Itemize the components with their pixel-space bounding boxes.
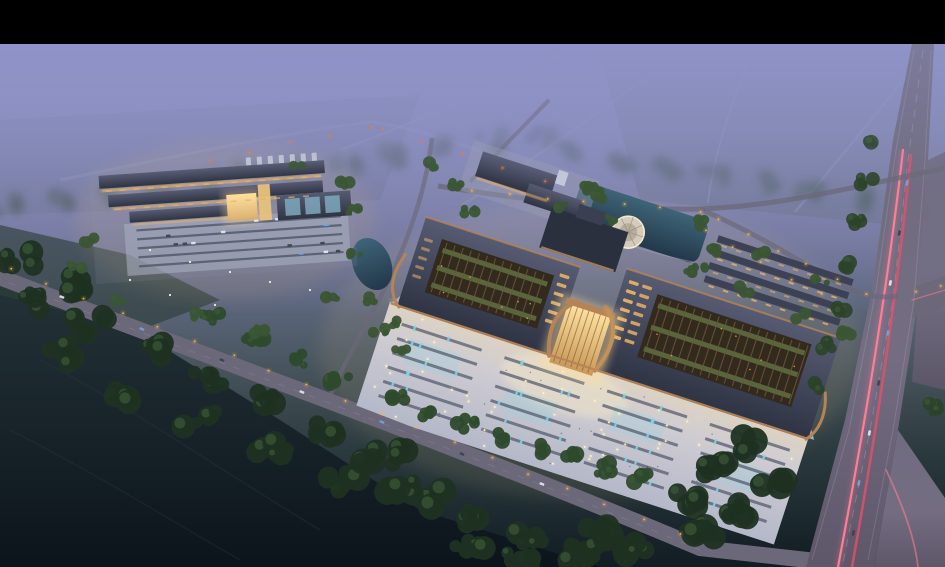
lamp — [700, 211, 702, 213]
lamp — [865, 293, 867, 295]
lamp — [509, 193, 511, 195]
lot-light — [169, 294, 171, 296]
hedge — [538, 446, 545, 453]
lamp — [305, 384, 307, 386]
lamp — [527, 473, 529, 475]
forest-tree — [22, 243, 33, 254]
letterbox-top — [0, 0, 945, 44]
tree — [120, 299, 127, 306]
parked-car — [183, 242, 188, 245]
tree — [554, 204, 559, 209]
forest-tree — [350, 453, 371, 474]
parked-car — [320, 242, 325, 245]
forest-tree — [1, 250, 8, 257]
forest-tree — [594, 514, 620, 540]
forest-tree — [503, 548, 509, 554]
lamp — [492, 457, 494, 459]
forest-tree — [269, 450, 275, 456]
left-tower — [258, 184, 272, 221]
forest-tree — [152, 341, 162, 351]
hedge — [344, 372, 353, 381]
tree — [348, 205, 352, 209]
tree — [837, 325, 849, 337]
tree — [472, 206, 474, 208]
forest-tree — [509, 524, 520, 535]
lamp — [345, 400, 347, 402]
parked-car — [287, 244, 292, 247]
forest-tree — [729, 503, 754, 528]
hedge — [471, 417, 475, 421]
lamp — [583, 201, 585, 203]
forest-tree — [249, 384, 267, 402]
tree — [933, 405, 938, 410]
lot-light — [269, 281, 271, 283]
lamp — [194, 340, 196, 342]
tree — [597, 192, 601, 196]
tree — [841, 261, 854, 274]
hedge — [399, 390, 403, 394]
parked-car — [299, 252, 304, 255]
tree — [707, 245, 711, 249]
tree — [77, 264, 82, 269]
forest-tree — [391, 448, 400, 457]
tree — [365, 293, 370, 298]
tree — [753, 251, 758, 256]
tree — [201, 314, 207, 320]
lamp — [624, 203, 626, 205]
tree — [792, 314, 797, 319]
forest-tree — [265, 434, 276, 445]
forest-tree — [460, 504, 478, 522]
forest-tree — [26, 258, 35, 267]
lamp — [471, 190, 473, 192]
lamp — [83, 298, 85, 300]
forest-tree — [41, 341, 58, 358]
lamp — [268, 370, 270, 372]
tree — [692, 263, 698, 269]
tree — [112, 295, 117, 300]
hedge — [385, 389, 400, 404]
tree — [83, 238, 88, 243]
forest-tree — [738, 444, 748, 454]
forest-tree — [325, 426, 336, 437]
forest-tree — [209, 405, 222, 418]
tree — [382, 330, 388, 336]
lamp — [777, 250, 779, 252]
lamp — [680, 533, 682, 535]
forest-tree — [408, 476, 414, 482]
lamp — [718, 218, 720, 220]
tree — [69, 263, 73, 267]
hedge — [419, 413, 424, 418]
tree — [368, 327, 379, 338]
parked-car — [325, 223, 330, 226]
forest-tree — [698, 458, 707, 467]
forest-tree — [119, 392, 130, 403]
forest-tree — [475, 539, 486, 550]
lot-light — [129, 279, 131, 281]
tree — [346, 252, 353, 259]
forest-tree — [66, 310, 76, 320]
tree — [392, 320, 398, 326]
forest-tree — [62, 282, 73, 293]
forest-tree — [449, 540, 461, 552]
lamp — [566, 488, 568, 490]
tree — [825, 338, 829, 342]
tree — [191, 308, 196, 313]
lamp — [659, 207, 661, 209]
lot-light — [189, 261, 191, 263]
tree — [712, 244, 722, 254]
hedge — [595, 471, 599, 475]
lamp — [915, 291, 917, 293]
hedge — [424, 405, 437, 418]
lamp — [791, 279, 793, 281]
lamp — [233, 354, 235, 356]
parked-car — [173, 243, 178, 246]
lamp — [45, 283, 47, 285]
tree — [563, 201, 568, 206]
lamp — [10, 268, 12, 270]
tree — [684, 269, 687, 272]
tree — [817, 344, 823, 350]
lamp — [940, 285, 942, 287]
forest-tree — [433, 481, 445, 493]
hedge — [606, 466, 612, 472]
parked-car — [324, 251, 329, 254]
lot-light — [229, 271, 231, 273]
forest-tree — [209, 376, 224, 391]
tree — [815, 385, 820, 390]
tree — [858, 215, 862, 219]
lamp — [837, 278, 839, 280]
tree — [358, 252, 360, 254]
parked-car — [221, 231, 226, 234]
forest-tree — [529, 538, 535, 544]
parked-car — [191, 242, 196, 245]
tree — [371, 300, 374, 303]
tree — [700, 262, 709, 271]
hedge — [450, 416, 465, 431]
lamp — [643, 519, 645, 521]
top-haze — [0, 44, 945, 184]
tree — [694, 216, 699, 221]
tree — [800, 312, 803, 315]
forest-tree — [684, 523, 696, 535]
forest-tree — [629, 546, 635, 552]
lamp — [381, 412, 383, 414]
forest-tree — [774, 473, 794, 493]
forest-tree — [389, 478, 400, 489]
tree — [824, 280, 827, 283]
tree — [582, 186, 592, 196]
lamp — [760, 261, 762, 263]
hedge — [568, 446, 584, 462]
forest-tree — [58, 338, 67, 347]
lamp — [547, 198, 549, 200]
parked-car — [336, 250, 341, 253]
tree — [811, 275, 816, 280]
tree — [746, 290, 750, 294]
tree — [848, 215, 854, 221]
lamp — [603, 503, 605, 505]
parked-car — [166, 234, 171, 237]
hedge — [498, 432, 508, 442]
tree — [612, 218, 615, 221]
forest-tree — [560, 552, 570, 562]
lamp — [821, 293, 823, 295]
tree — [398, 349, 401, 352]
forest-tree — [523, 549, 541, 567]
forest-tree — [421, 496, 433, 508]
tree — [760, 247, 766, 253]
lamp — [732, 246, 734, 248]
tree — [735, 282, 741, 288]
forest-tree — [20, 292, 26, 298]
forest-tree — [586, 549, 600, 563]
tree — [688, 266, 691, 269]
tree — [356, 206, 363, 213]
forest-tree — [61, 357, 70, 366]
lot-light — [309, 289, 311, 291]
tree — [321, 293, 327, 299]
lot-light — [214, 304, 216, 306]
left-annex-skylight — [325, 195, 341, 213]
forest-tree — [753, 476, 764, 487]
aerial-rendering — [0, 0, 945, 567]
lamp — [415, 426, 417, 428]
left-entrance-glow — [222, 189, 262, 226]
hedge — [215, 308, 221, 314]
left-annex-skylight — [285, 198, 301, 216]
lamp — [454, 441, 456, 443]
tree — [461, 205, 468, 212]
lamp — [748, 234, 750, 236]
hedge — [628, 476, 635, 483]
forest-tree — [175, 418, 186, 429]
lot-light — [149, 249, 151, 251]
tree — [835, 306, 841, 312]
lamp — [156, 326, 158, 328]
forest-tree — [670, 486, 678, 494]
lamp — [705, 229, 707, 231]
lamp — [122, 312, 124, 314]
forest-tree — [188, 366, 202, 380]
rendering-frame — [0, 0, 945, 567]
lamp — [805, 263, 807, 265]
tree — [924, 399, 930, 405]
forest-tree — [97, 309, 117, 329]
tree — [333, 295, 340, 302]
hedge — [327, 374, 342, 389]
left-annex-skylight — [305, 196, 321, 214]
tree — [253, 324, 261, 332]
forest-tree — [688, 492, 698, 502]
forest-tree — [719, 454, 729, 464]
hedge — [289, 352, 303, 366]
tree — [381, 324, 386, 329]
